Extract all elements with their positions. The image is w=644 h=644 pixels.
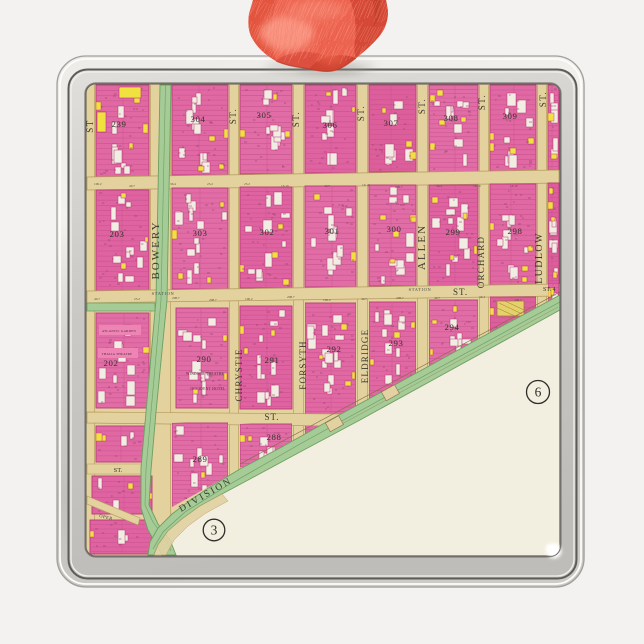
svg-text:STATION: STATION <box>409 287 432 292</box>
svg-text:ST.: ST. <box>291 111 301 128</box>
svg-text:208.7: 208.7 <box>209 298 217 302</box>
svg-text:3: 3 <box>211 523 218 538</box>
svg-text:239: 239 <box>112 119 127 129</box>
svg-text:291: 291 <box>265 355 280 365</box>
svg-text:208.7: 208.7 <box>172 296 180 300</box>
svg-text:294: 294 <box>445 322 460 332</box>
svg-text:6: 6 <box>535 385 542 400</box>
svg-text:BOWERY: BOWERY <box>150 220 162 279</box>
svg-text:299: 299 <box>446 227 461 237</box>
svg-text:305: 305 <box>257 110 272 120</box>
svg-text:25.2: 25.2 <box>134 297 140 301</box>
svg-text:40.7: 40.7 <box>361 297 367 301</box>
svg-text:OCCIDENT HOTEL: OCCIDENT HOTEL <box>191 387 226 391</box>
svg-text:25.2: 25.2 <box>244 182 250 186</box>
svg-text:302: 302 <box>260 227 275 237</box>
svg-text:CHRYSTIE: CHRYSTIE <box>234 348 244 401</box>
svg-text:36.4: 36.4 <box>170 182 176 186</box>
svg-text:309: 309 <box>503 111 518 121</box>
svg-text:ST: ST <box>85 119 95 133</box>
svg-text:ST.: ST. <box>228 108 238 125</box>
svg-text:WINDSOR THEATRE: WINDSOR THEATRE <box>186 372 225 376</box>
svg-text:ALLEN: ALLEN <box>416 224 428 270</box>
svg-text:ST.: ST. <box>477 94 487 111</box>
svg-text:ORCHARD: ORCHARD <box>476 236 486 288</box>
svg-text:ST.: ST. <box>538 91 548 108</box>
svg-text:301: 301 <box>325 226 340 236</box>
svg-text:307: 307 <box>384 118 399 128</box>
svg-text:288: 288 <box>267 432 282 442</box>
svg-text:100.2: 100.2 <box>323 298 331 302</box>
svg-text:ST.: ST. <box>356 105 366 122</box>
svg-text:FORSYTH: FORSYTH <box>298 340 308 389</box>
svg-text:308: 308 <box>444 113 459 123</box>
svg-text:16.10: 16.10 <box>281 184 289 188</box>
svg-text:303: 303 <box>193 228 208 238</box>
svg-text:293: 293 <box>389 338 404 348</box>
svg-text:202: 202 <box>104 358 119 368</box>
svg-text:208.7: 208.7 <box>287 295 295 299</box>
svg-text:25.2: 25.2 <box>207 182 213 186</box>
svg-text:40.7: 40.7 <box>434 296 440 300</box>
svg-text:208.7: 208.7 <box>514 298 522 302</box>
svg-text:203: 203 <box>110 229 125 239</box>
svg-text:LUDLOW: LUDLOW <box>534 232 545 284</box>
svg-text:289: 289 <box>193 454 208 464</box>
svg-text:ST.: ST. <box>114 467 123 474</box>
svg-text:36.4: 36.4 <box>479 295 485 299</box>
svg-text:300: 300 <box>387 224 402 234</box>
svg-text:16.10: 16.10 <box>473 184 481 188</box>
svg-text:16.10: 16.10 <box>362 183 370 187</box>
svg-text:ST.: ST. <box>264 412 279 422</box>
svg-text:40.7: 40.7 <box>94 297 100 301</box>
svg-text:208.7: 208.7 <box>396 296 404 300</box>
svg-text:16.10: 16.10 <box>510 184 518 188</box>
svg-text:ST. 4: ST. 4 <box>543 287 556 293</box>
svg-text:208.7: 208.7 <box>395 185 403 189</box>
svg-text:290: 290 <box>197 354 212 364</box>
svg-text:100.2: 100.2 <box>94 182 102 186</box>
svg-text:100.2: 100.2 <box>245 297 253 301</box>
svg-text:292: 292 <box>327 344 342 354</box>
svg-text:ELDRIDGE: ELDRIDGE <box>360 329 370 384</box>
svg-text:ST.: ST. <box>453 287 468 297</box>
svg-text:36.4: 36.4 <box>436 184 442 188</box>
svg-text:40.7: 40.7 <box>129 184 135 188</box>
svg-text:304: 304 <box>191 114 206 124</box>
svg-text:306: 306 <box>323 120 338 130</box>
svg-text:298: 298 <box>508 226 523 236</box>
svg-text:THALIA THEATRE: THALIA THEATRE <box>102 352 133 356</box>
svg-text:ST.: ST. <box>417 98 427 115</box>
svg-text:40.7: 40.7 <box>324 184 330 188</box>
svg-text:ATLANTIC GARDEN: ATLANTIC GARDEN <box>102 329 137 333</box>
